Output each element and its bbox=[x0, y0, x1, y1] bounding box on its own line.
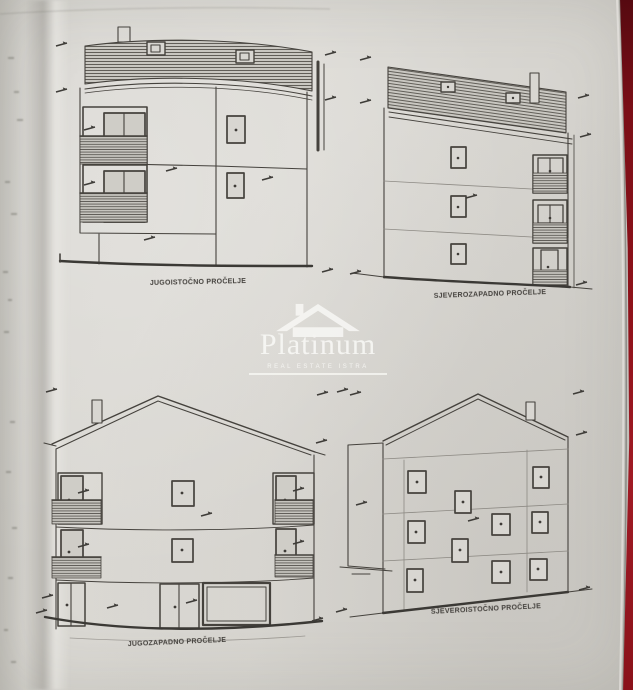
watermark-tagline: REAL ESTATE ISTRA bbox=[245, 364, 391, 370]
baseline bbox=[60, 254, 312, 266]
drawing-northeast-elevation bbox=[336, 387, 592, 617]
watermark-underline bbox=[249, 373, 386, 375]
roof bbox=[383, 394, 568, 445]
balconies bbox=[533, 155, 567, 285]
watermark-brand: Platinum bbox=[245, 330, 391, 360]
drawing-northwest-elevation bbox=[322, 50, 592, 289]
windows bbox=[172, 481, 194, 562]
drawing-southeast-elevation bbox=[56, 27, 324, 267]
ground-floor-doors bbox=[58, 583, 270, 628]
windows bbox=[407, 467, 549, 592]
windows bbox=[451, 147, 466, 264]
annex bbox=[340, 443, 392, 574]
balconies bbox=[80, 107, 147, 222]
windows bbox=[227, 116, 245, 198]
watermark: Platinum REAL ESTATE ISTRA bbox=[245, 302, 391, 375]
roof bbox=[44, 396, 325, 455]
photographed-plan-sheet: JUGOISTOČNO PROČELJE SJEVEROZAPADNO PROČ… bbox=[0, 0, 633, 690]
drawing-southwest-elevation bbox=[36, 387, 328, 640]
baseline bbox=[45, 617, 322, 641]
roof-band bbox=[388, 67, 572, 144]
